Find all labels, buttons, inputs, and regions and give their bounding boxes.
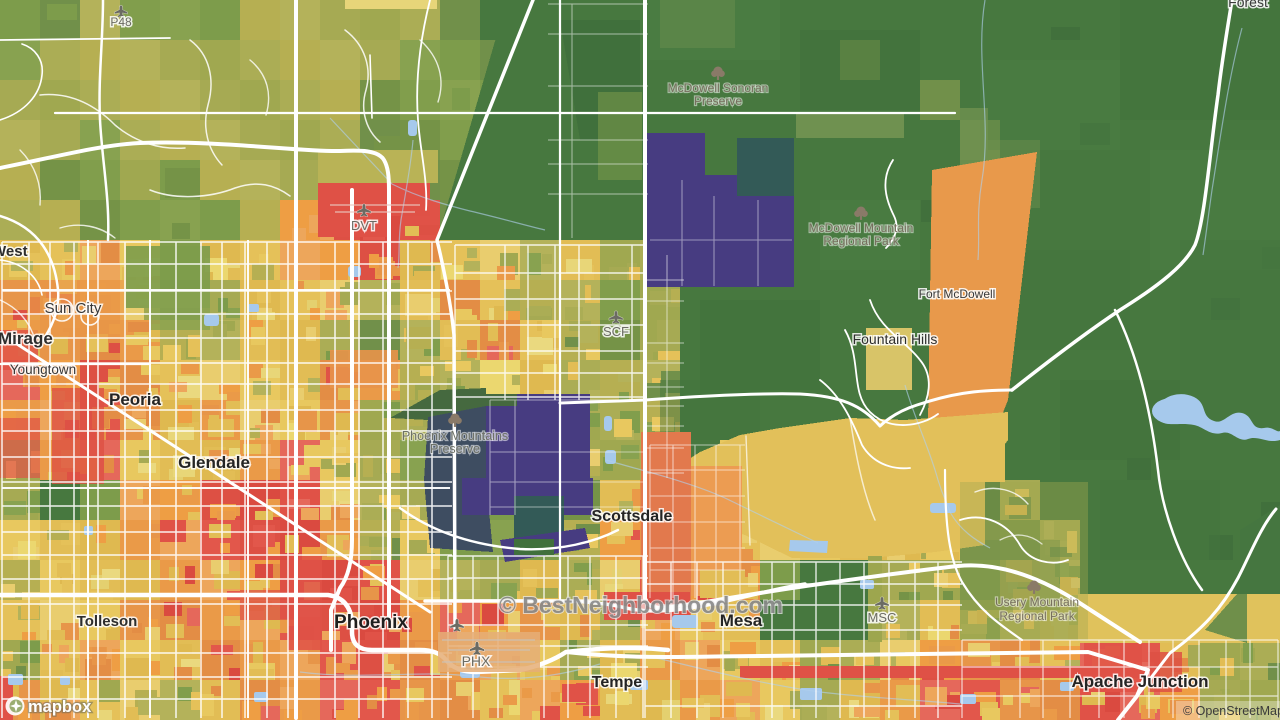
svg-text:Usery Mountain: Usery Mountain bbox=[995, 595, 1079, 609]
svg-text:Regional Park: Regional Park bbox=[999, 609, 1075, 623]
svg-text:Peoria: Peoria bbox=[109, 390, 162, 409]
svg-text:Preserve: Preserve bbox=[694, 94, 742, 108]
svg-text:Regional Park: Regional Park bbox=[823, 234, 899, 248]
svg-text:West: West bbox=[0, 243, 28, 260]
svg-text:P48: P48 bbox=[110, 15, 132, 29]
svg-text:McDowell Sonoran: McDowell Sonoran bbox=[668, 81, 769, 95]
svg-text:© OpenStreetMap: © OpenStreetMap bbox=[1183, 704, 1280, 718]
svg-text:© BestNeighborhood.com: © BestNeighborhood.com bbox=[499, 592, 783, 618]
svg-text:Glendale: Glendale bbox=[178, 453, 250, 472]
svg-text:Tolleson: Tolleson bbox=[77, 613, 138, 630]
svg-text:MSC: MSC bbox=[868, 610, 897, 625]
svg-text:mapbox: mapbox bbox=[28, 698, 92, 716]
svg-text:Youngtown: Youngtown bbox=[10, 362, 76, 377]
svg-text:Phoenix: Phoenix bbox=[334, 612, 408, 633]
svg-text:Apache Junction: Apache Junction bbox=[1072, 672, 1209, 691]
svg-text:Scottsdale: Scottsdale bbox=[592, 508, 673, 525]
svg-text:PHX: PHX bbox=[462, 653, 491, 669]
svg-text:McDowell Mountain: McDowell Mountain bbox=[809, 221, 914, 235]
svg-text:Forest: Forest bbox=[1228, 0, 1268, 10]
svg-text:Fountain Hills: Fountain Hills bbox=[853, 331, 938, 347]
svg-text:DVT: DVT bbox=[351, 218, 377, 233]
svg-text:Fort McDowell: Fort McDowell bbox=[919, 287, 996, 301]
svg-text:Tempe: Tempe bbox=[592, 674, 642, 691]
svg-text:Sun City: Sun City bbox=[45, 300, 102, 317]
svg-text:Preserve: Preserve bbox=[430, 442, 480, 456]
svg-text:Mirage: Mirage bbox=[0, 329, 53, 348]
svg-text:SCF: SCF bbox=[603, 324, 629, 339]
svg-text:Phoenix Mountains: Phoenix Mountains bbox=[402, 429, 508, 443]
